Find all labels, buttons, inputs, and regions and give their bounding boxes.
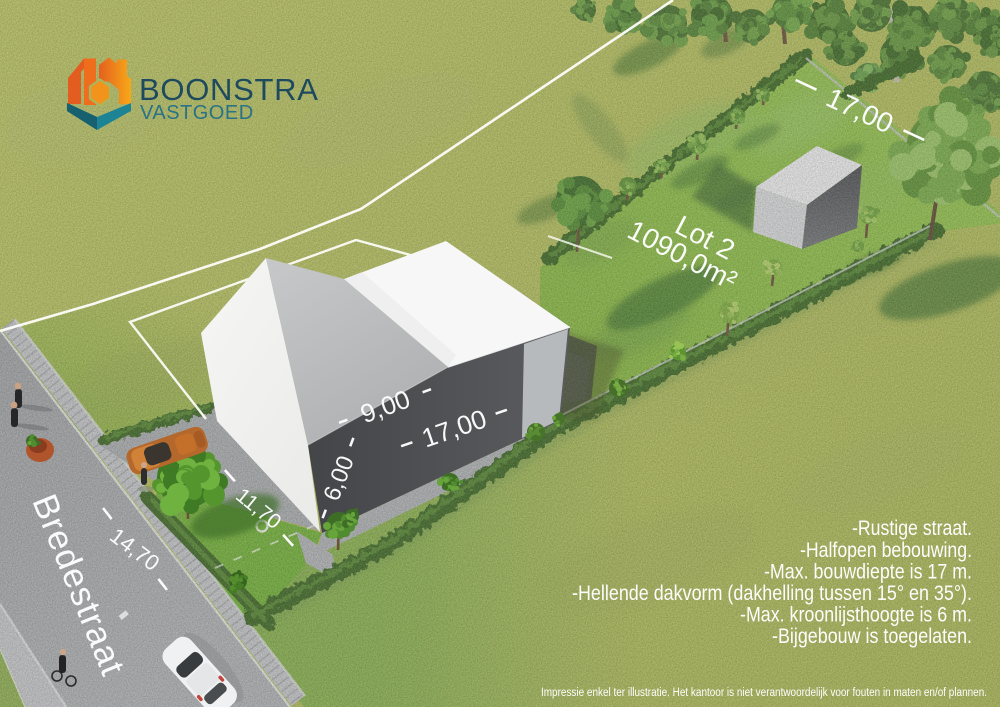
svg-text:-Max. bouwdiepte is 17 m.: -Max. bouwdiepte is 17 m. — [764, 561, 972, 584]
svg-text:-Rustige straat.: -Rustige straat. — [852, 517, 972, 540]
svg-text:-Halfopen bebouwing.: -Halfopen bebouwing. — [800, 539, 972, 562]
svg-text:-Bijgebouw is toegelaten.: -Bijgebouw is toegelaten. — [772, 625, 972, 648]
svg-text:Impressie enkel ter illustrati: Impressie enkel ter illustratie. Het kan… — [541, 687, 987, 699]
svg-text:VASTGOED: VASTGOED — [140, 102, 254, 124]
svg-text:-Hellende dakvorm (dakhelling: -Hellende dakvorm (dakhelling tussen 15°… — [572, 582, 972, 605]
svg-text:-Max. kroonlijsthoogte is 6 m.: -Max. kroonlijsthoogte is 6 m. — [740, 604, 972, 627]
